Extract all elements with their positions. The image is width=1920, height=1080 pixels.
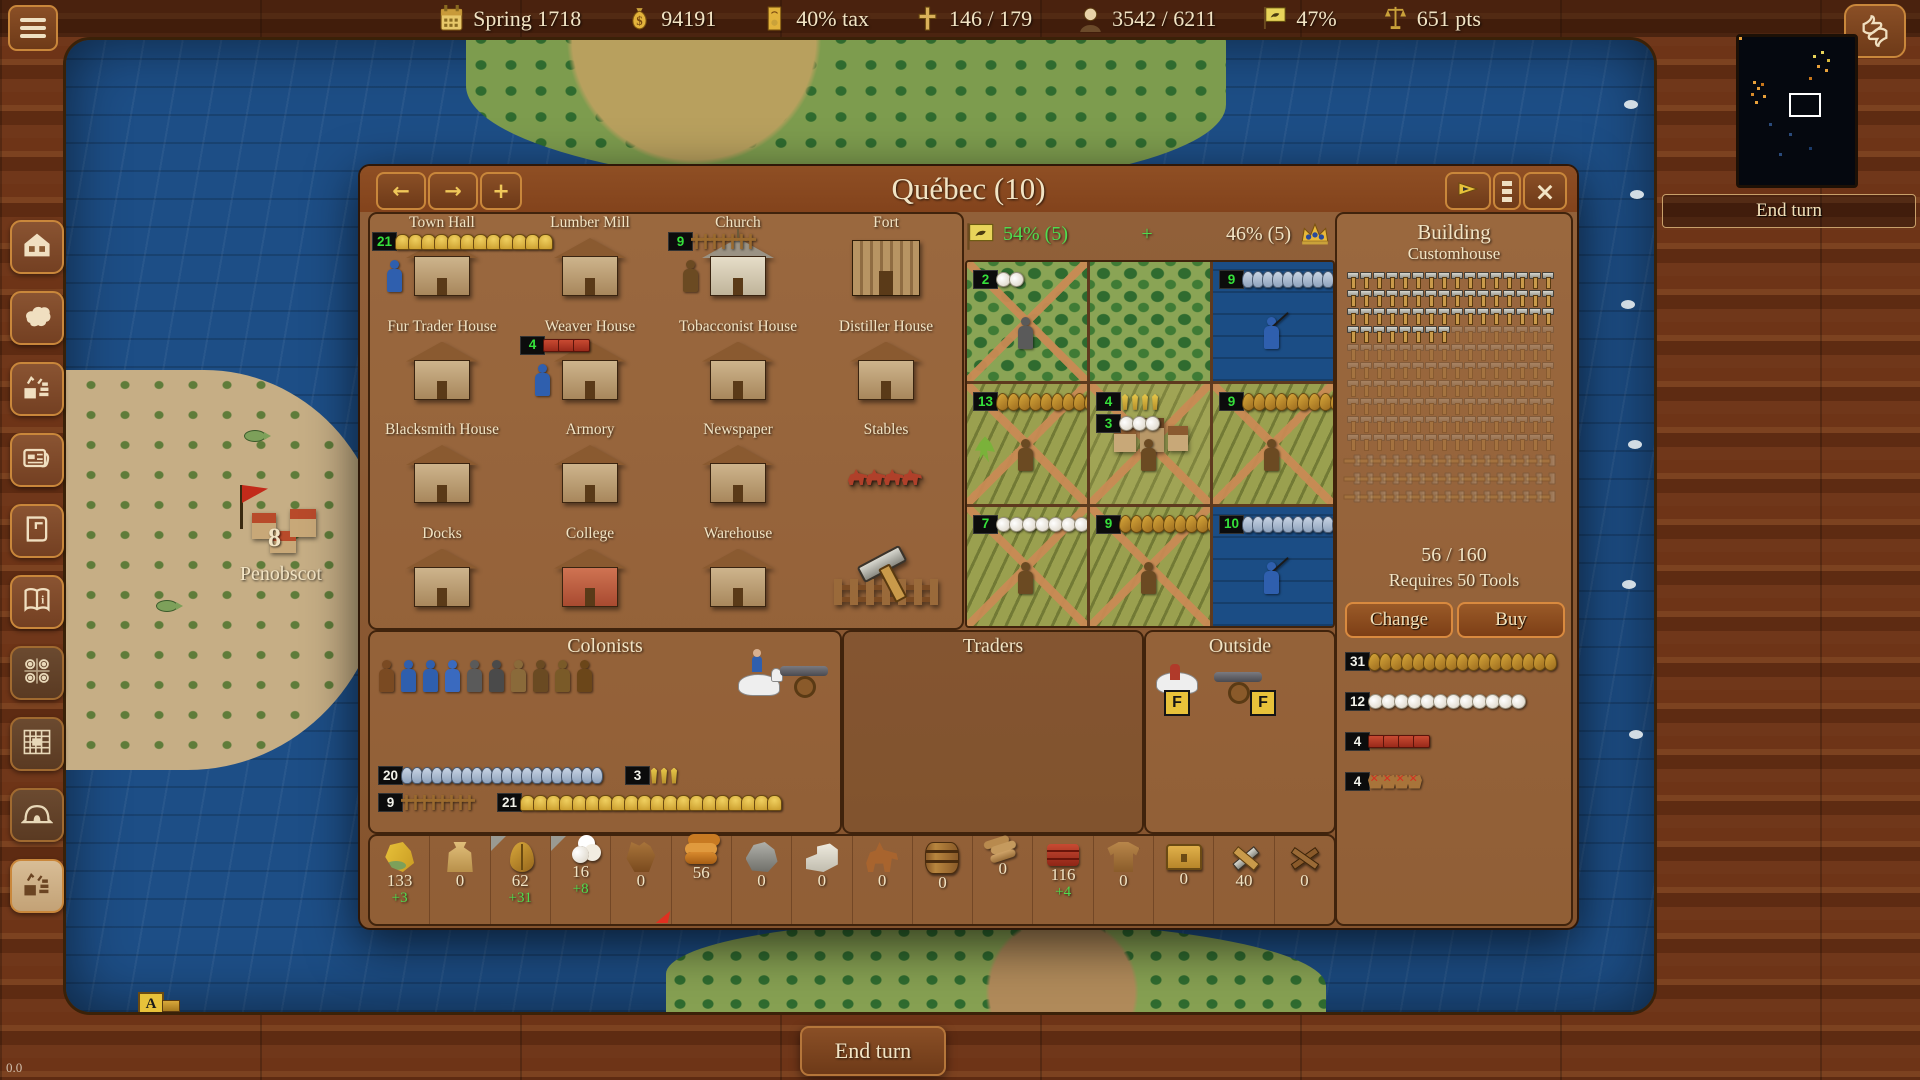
building-sprite (406, 549, 478, 607)
cross-icon (401, 795, 412, 810)
dragoon-unit[interactable] (738, 662, 782, 696)
colonist-figure[interactable] (1017, 562, 1034, 594)
hammer-icon (1541, 398, 1554, 414)
buildings-grid: Town Hall21Lumber MillChurch9FortFur Tra… (368, 212, 960, 626)
colonist-figure[interactable] (554, 660, 571, 692)
colonist-figure[interactable] (576, 660, 593, 692)
building-newspaper[interactable]: Newspaper (664, 419, 812, 523)
build-progress-hammers (1346, 272, 1558, 504)
unit-marker[interactable]: A (138, 992, 164, 1012)
count-badge: 9 (1219, 392, 1244, 411)
hammer-icon (1541, 416, 1554, 432)
stat-group: 9 (378, 793, 475, 812)
hammer-icon (1502, 398, 1515, 414)
resource-value: 0 (938, 874, 947, 893)
close-button[interactable]: × (1523, 172, 1567, 210)
building-name: Distiller House (812, 318, 960, 336)
outside-dragoon-unit[interactable]: F (1156, 668, 1202, 712)
hide-icon (1407, 775, 1422, 789)
tobacco-icon (1330, 393, 1333, 411)
hammer-icon (1372, 398, 1385, 414)
resource-tools[interactable]: 40 (1214, 836, 1274, 924)
resource-silver[interactable]: 0 (792, 836, 852, 924)
colony-tile-2[interactable]: 9 (1213, 262, 1333, 381)
building-carpenter-yard[interactable] (812, 523, 960, 627)
hammer-icon (1398, 380, 1411, 396)
hammer-icon (1463, 416, 1476, 432)
building-roof (406, 445, 478, 465)
building-warehouse[interactable]: Warehouse (664, 523, 812, 627)
money-bag-icon: $ (627, 5, 652, 32)
end-turn-label: End turn (1756, 200, 1822, 222)
hammer-icon (1541, 272, 1554, 288)
hammer-icon (1489, 416, 1502, 432)
building-sprite (702, 549, 774, 607)
tax-icon (762, 5, 787, 32)
list-view-button[interactable] (1493, 172, 1521, 210)
resource-cotton[interactable]: 16+8 (551, 836, 611, 924)
sidebar-item-info-book[interactable]: i (10, 575, 64, 629)
hammer-icon (1450, 308, 1463, 324)
hammer-icon (1359, 326, 1372, 342)
hammer-icon (1463, 380, 1476, 396)
hammer-icon (1515, 416, 1528, 432)
colonist-figure[interactable] (510, 660, 527, 692)
hammer-icon (1372, 380, 1385, 396)
hammer-icon (1489, 380, 1502, 396)
colony-stats: 203921 (378, 766, 782, 812)
info-book-icon: i (21, 584, 53, 621)
resource-horses[interactable]: 0 (853, 836, 913, 924)
hut-icon (21, 797, 53, 834)
unit-marker-letter: A (146, 996, 157, 1013)
hammer-icon (1437, 272, 1450, 288)
resource-value: 0 (757, 872, 766, 891)
change-build-button[interactable]: Change (1345, 602, 1453, 638)
resource-tobacco[interactable]: 62+31 (491, 836, 551, 924)
resource-value: 116 (1051, 866, 1076, 885)
hammer-icon (1502, 308, 1515, 324)
sidebar-item-medals[interactable] (10, 646, 64, 700)
hammer-icon (1372, 416, 1385, 432)
landmass-south (666, 920, 1326, 1012)
portrait-icon (1078, 5, 1103, 32)
hammer-icon (1528, 326, 1541, 342)
hammer-icon (1489, 326, 1502, 342)
wheat-icon (1149, 394, 1161, 410)
colonist-figure[interactable] (1263, 562, 1280, 594)
hammer-icon (1476, 362, 1489, 378)
coats-icon (1107, 842, 1139, 872)
hammer-icon (1398, 272, 1411, 288)
food-icon (384, 842, 416, 872)
hammer-icon (1424, 416, 1437, 432)
hammer-icon (1346, 344, 1359, 360)
hammer-icon (1437, 290, 1450, 306)
hammer-icon (1476, 308, 1489, 324)
pennant-icon (1456, 179, 1480, 203)
building-sprite (850, 342, 922, 400)
building-college[interactable]: College (516, 523, 664, 627)
colony-tile-3[interactable]: 13 (967, 384, 1087, 503)
hammer-icon (1424, 272, 1437, 288)
resource-value: 62 (512, 872, 529, 891)
traders-panel: Traders (842, 630, 1144, 834)
resource-value: 40 (1236, 872, 1253, 891)
cotton-strip (1121, 416, 1160, 431)
hammer-icon (1528, 290, 1541, 306)
hammer-icon (1476, 290, 1489, 306)
hammer-icon (1346, 362, 1359, 378)
resource-value: 0 (456, 872, 465, 891)
hammer-icon (1515, 434, 1528, 450)
resource-food[interactable]: 133+3 (370, 836, 430, 924)
hammer-icon (1437, 434, 1450, 450)
hammer-icon (1528, 308, 1541, 324)
hammer-icon (1541, 308, 1554, 324)
building-name: Newspaper (664, 421, 812, 439)
production-header: 54% (5) + 46% (5) (965, 214, 1331, 254)
building-weaver-house[interactable]: Weaver House4 (516, 316, 664, 420)
building-church[interactable]: Church9 (664, 212, 812, 316)
count-badge: 9 (378, 793, 403, 812)
hammer-icon (1476, 344, 1489, 360)
hammer-icon (1541, 344, 1554, 360)
ice-speck (1621, 300, 1635, 309)
settlement-size: 8 (268, 523, 281, 553)
ice-speck (1630, 190, 1644, 199)
hammer-icon (1450, 362, 1463, 378)
building-fort[interactable]: Fort (812, 212, 960, 316)
stock-row: 4 (1345, 772, 1565, 791)
sidebar-item-trade-alt[interactable] (10, 859, 64, 913)
cross-icon (727, 234, 738, 249)
minimap[interactable] (1736, 34, 1858, 188)
wheat-icon (658, 768, 670, 784)
building-body (414, 463, 470, 503)
hammer-icon (1398, 290, 1411, 306)
resource-value: 56 (693, 864, 710, 883)
hammer-icon (1515, 344, 1528, 360)
building-body (710, 463, 766, 503)
resource-goods[interactable]: 0 (1154, 836, 1214, 924)
buy-build-button[interactable]: Buy (1457, 602, 1565, 638)
building-sprite (554, 238, 626, 296)
tool-icon (1540, 490, 1556, 503)
hammer-icon (1411, 308, 1424, 324)
tobacco-strip (998, 393, 1087, 411)
cross-strip (403, 795, 475, 810)
colonist-figure[interactable] (1140, 562, 1157, 594)
colonist-figures[interactable] (378, 660, 593, 692)
colony-tile-map[interactable]: 29134397910 (965, 260, 1335, 628)
score-label: 651 pts (1417, 6, 1481, 32)
hammer-icon (1463, 326, 1476, 342)
clothsm-strip (545, 339, 590, 352)
cannon-wheel (794, 676, 816, 698)
colonist-figure[interactable] (1017, 317, 1034, 349)
hammer-icon (857, 544, 908, 582)
hammer-icon (1450, 326, 1463, 342)
unit-state-badge: F (1164, 690, 1190, 716)
split-view-button[interactable]: + (480, 172, 522, 210)
resource-lumber[interactable]: 56 (672, 836, 732, 924)
sidebar-item-europe[interactable] (10, 291, 64, 345)
tobacco-plant-icon (975, 436, 995, 462)
hammer-icon (1502, 326, 1515, 342)
colonist-figure[interactable] (1263, 439, 1280, 471)
bell-strip (522, 795, 782, 811)
hammer-icon (1372, 290, 1385, 306)
hammer-icon (1502, 380, 1515, 396)
building-name: Blacksmith House (368, 421, 516, 439)
building-town-hall[interactable]: Town Hall21 (368, 212, 516, 316)
hammer-icon (1437, 380, 1450, 396)
hammer-icon (1437, 344, 1450, 360)
end-turn-button-right[interactable]: End turn (1662, 194, 1916, 228)
hammer-icon (1398, 362, 1411, 378)
house-icon (21, 229, 53, 266)
hammer-icon (1385, 272, 1398, 288)
colony-tile-4[interactable]: 43 (1090, 384, 1210, 503)
muskets-icon (1288, 842, 1320, 872)
hammer-icon (1502, 434, 1515, 450)
cotton-icon (1074, 517, 1087, 532)
hammer-icon (1346, 290, 1359, 306)
outside-units: F F (1156, 668, 1276, 712)
hammer-icon (1359, 290, 1372, 306)
menu-button[interactable] (8, 5, 58, 51)
hammer-icon (1476, 380, 1489, 396)
fish-icon (591, 767, 603, 784)
trade-icon (21, 371, 53, 408)
colonist-figure[interactable] (378, 660, 395, 692)
cotton-icon (1145, 416, 1160, 431)
building-stables[interactable]: Stables (812, 419, 960, 523)
sidebar-item-house[interactable] (10, 220, 64, 274)
horse-icon (902, 469, 922, 485)
hammer-icon (1502, 290, 1515, 306)
resource-cigars[interactable]: 0 (973, 836, 1033, 924)
hammer-icon (1411, 416, 1424, 432)
colonist-figure[interactable] (682, 260, 699, 292)
close-icon: × (1535, 177, 1556, 206)
cross-strip (693, 234, 756, 249)
hammer-icon (1385, 362, 1398, 378)
native-settlement-penobscot[interactable]: 8 Penobscot (216, 485, 346, 605)
hammer-icon (1372, 434, 1385, 450)
hammer-icon (1515, 308, 1528, 324)
hammer-icon (1437, 308, 1450, 324)
cannon-unit[interactable] (778, 664, 830, 694)
change-label: Change (1370, 609, 1428, 631)
liberty-flag-icon (965, 221, 995, 247)
hammer-icon (1515, 362, 1528, 378)
building-sprite (554, 445, 626, 503)
build-requires-text: Requires 50 Tools (1337, 570, 1571, 591)
colony-tile-6[interactable]: 7 (967, 507, 1087, 626)
resource-coats[interactable]: 0 (1094, 836, 1154, 924)
building-sprite (702, 445, 774, 503)
hammer-icon (1346, 326, 1359, 342)
colony-tile-7[interactable]: 9 (1090, 507, 1210, 626)
hammer-icon (1450, 398, 1463, 414)
hammer-icon (1424, 362, 1437, 378)
hammer-icon (1346, 398, 1359, 414)
hammer-icon (1398, 308, 1411, 324)
count-badge: 9 (1096, 515, 1121, 534)
building-roof (406, 342, 478, 362)
building-body (562, 360, 618, 400)
population-label: 3542 / 6211 (1112, 6, 1216, 32)
crosses-display: 146 / 179 (915, 5, 1032, 32)
colonist-figure[interactable] (444, 660, 461, 692)
building-body (414, 360, 470, 400)
resource-value: 0 (999, 860, 1008, 879)
production-plus: + (1141, 223, 1152, 246)
hammer-icon (1515, 272, 1528, 288)
next-colony-button[interactable]: → (428, 172, 478, 210)
score-display: 651 pts (1383, 5, 1481, 32)
outside-title: Outside (1146, 635, 1334, 658)
colonist-figure[interactable] (386, 260, 403, 292)
colonist-figure[interactable] (1140, 439, 1157, 471)
colonist-figure[interactable] (534, 364, 551, 396)
hammer-icon (1411, 398, 1424, 414)
building-body (414, 567, 470, 607)
hammer-icon (1528, 272, 1541, 288)
count-badge: 10 (1219, 515, 1244, 534)
hammer-icon (1489, 362, 1502, 378)
building-body (414, 256, 470, 296)
hammer-icon (1411, 344, 1424, 360)
resource-rum[interactable]: 0 (913, 836, 973, 924)
count-badge: 4 (1345, 732, 1370, 751)
colonist-figure[interactable] (488, 660, 505, 692)
sidebar-item-hut[interactable] (10, 788, 64, 842)
building-distiller-house[interactable]: Distiller House (812, 316, 960, 420)
resource-muskets[interactable]: 0 (1275, 836, 1334, 924)
sidebar-item-newspaper[interactable] (10, 433, 64, 487)
liberty-production: 54% (5) (1003, 223, 1068, 246)
wheat-strip (650, 768, 680, 784)
colonist-figure[interactable] (532, 660, 549, 692)
sidebar-item-ledger[interactable] (10, 504, 64, 558)
hammer-icon (1463, 434, 1476, 450)
building-sprite (850, 549, 922, 607)
hammer-icon (1359, 398, 1372, 414)
resource-delta: +8 (573, 882, 589, 897)
building-armory[interactable]: Armory (516, 419, 664, 523)
hammer-icon (1463, 362, 1476, 378)
colony-tile-1[interactable] (1090, 262, 1210, 381)
crosses-label: 146 / 179 (949, 6, 1032, 32)
resource-value: 0 (1119, 872, 1128, 891)
building-docks[interactable]: Docks (368, 523, 516, 627)
hide-icon (1381, 775, 1396, 789)
forward-arrow-icon: → (444, 179, 462, 203)
outside-cannon-unit[interactable]: F (1212, 668, 1276, 712)
hammer-icon (1398, 416, 1411, 432)
treasury-display: $ 94191 (627, 5, 716, 32)
hammer-icon (1411, 272, 1424, 288)
hammer-icon (1359, 434, 1372, 450)
clothsm-icon (1413, 735, 1430, 748)
colony-tile-8[interactable]: 10 (1213, 507, 1333, 626)
building-fur-trader-house[interactable]: Fur Trader House (368, 316, 516, 420)
hammer-icon (1541, 290, 1554, 306)
colonist-figure[interactable] (1263, 317, 1280, 349)
building-lumber-mill[interactable]: Lumber Mill (516, 212, 664, 316)
resource-delta: +31 (509, 891, 532, 906)
horse-icon (738, 674, 780, 696)
sidebar-item-trade[interactable] (10, 362, 64, 416)
hammer-icon (1398, 434, 1411, 450)
colony-tile-5[interactable]: 9 (1213, 384, 1333, 503)
ice-speck (1629, 730, 1643, 739)
building-production: 9 (668, 232, 756, 251)
resource-cloth[interactable]: 116+4 (1033, 836, 1093, 924)
colony-tile-0[interactable]: 2 (967, 262, 1087, 381)
cross-icon (745, 234, 756, 249)
colonist-figure[interactable] (400, 660, 417, 692)
colonist-figure[interactable] (422, 660, 439, 692)
end-turn-button[interactable]: End turn (800, 1026, 946, 1076)
sidebar-item-fort-grid[interactable] (10, 717, 64, 771)
hammer-icon (1489, 344, 1502, 360)
prev-colony-button[interactable]: ← (376, 172, 426, 210)
building-name: Stables (812, 421, 960, 439)
resource-furs[interactable]: 0 (611, 836, 671, 924)
resource-ore[interactable]: 0 (732, 836, 792, 924)
hammer-icon (1541, 434, 1554, 450)
newspaper-icon (21, 442, 53, 479)
hammer-icon (1424, 326, 1437, 342)
building-name: Warehouse (664, 525, 812, 543)
building-tobacconist-house[interactable]: Tobacconist House (664, 316, 812, 420)
hammer-icon (1502, 344, 1515, 360)
traders-title: Traders (844, 635, 1142, 658)
hammer-icon (1450, 380, 1463, 396)
building-blacksmith-house[interactable]: Blacksmith House (368, 419, 516, 523)
colonist-figure[interactable] (466, 660, 483, 692)
goto-button[interactable] (1445, 172, 1491, 210)
building-name: Weaver House (516, 318, 664, 336)
hammer-icon (1411, 434, 1424, 450)
wheat-icon (668, 768, 680, 784)
hammer-icon (1541, 380, 1554, 396)
goods-stock-rows: 311244 (1345, 652, 1565, 791)
count-badge: 13 (973, 392, 998, 411)
resource-sugar[interactable]: 0 (430, 836, 490, 924)
colonist-figure[interactable] (1017, 439, 1034, 471)
horse-icon (848, 469, 868, 485)
hammer-icon (1450, 416, 1463, 432)
hammer-icon (1372, 272, 1385, 288)
hammer-icon (1424, 344, 1437, 360)
resource-value: 0 (818, 872, 827, 891)
cannon-barrel (780, 666, 828, 676)
hammer-icon (1476, 434, 1489, 450)
cloth-icon (1047, 844, 1079, 866)
hammer-icon (1476, 398, 1489, 414)
build-queue-panel: Building Customhouse 56 / 160 Requires 5… (1335, 212, 1573, 926)
hammer-icon (1528, 362, 1541, 378)
count-badge: 12 (1345, 692, 1370, 711)
cross-icon (691, 234, 702, 249)
hammer-icon (1528, 398, 1541, 414)
hammer-icon (1489, 290, 1502, 306)
